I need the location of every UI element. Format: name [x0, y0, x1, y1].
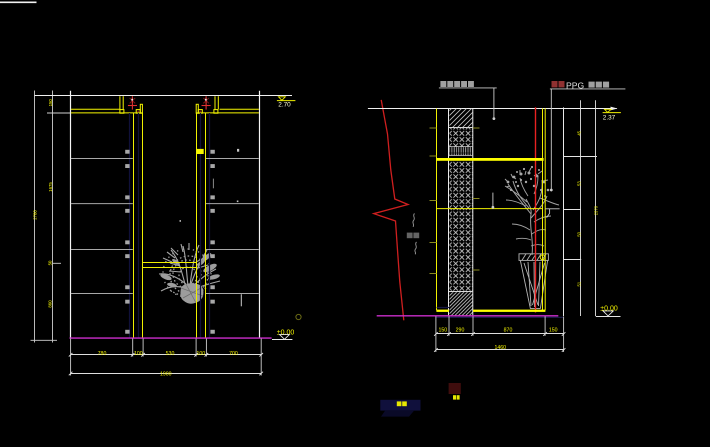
svg-text:700: 700: [229, 351, 238, 357]
svg-text:290: 290: [456, 328, 465, 334]
svg-text:150: 150: [549, 328, 558, 334]
svg-text:1675: 1675: [48, 182, 53, 192]
svg-text:1460: 1460: [495, 345, 507, 351]
svg-text:1900: 1900: [160, 371, 172, 377]
svg-text:150: 150: [48, 99, 53, 107]
svg-text:870: 870: [504, 328, 513, 334]
svg-text:2370: 2370: [594, 205, 599, 215]
svg-text:860: 860: [48, 300, 53, 308]
svg-text:100: 100: [196, 351, 205, 357]
svg-text:780: 780: [98, 351, 107, 357]
svg-text:50: 50: [577, 231, 582, 236]
svg-text:2.37: 2.37: [603, 114, 616, 121]
svg-text:2700: 2700: [32, 210, 37, 220]
svg-text:100: 100: [134, 351, 143, 357]
svg-text:2.70: 2.70: [278, 102, 291, 109]
svg-text:530: 530: [166, 351, 175, 357]
svg-text:150: 150: [438, 328, 447, 334]
svg-text:±0.00: ±0.00: [277, 330, 295, 337]
svg-text:53: 53: [576, 181, 581, 186]
svg-text:50: 50: [48, 260, 53, 265]
svg-text:45: 45: [576, 130, 581, 135]
svg-text:51: 51: [577, 281, 582, 286]
